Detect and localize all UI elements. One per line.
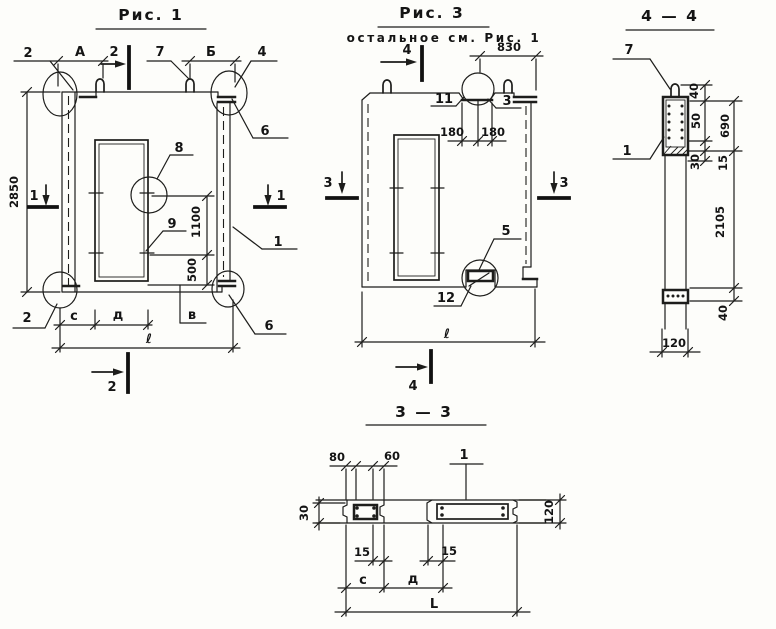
- sec33-pier-section: [343, 500, 384, 523]
- fig3-panel-outline: [362, 93, 537, 287]
- sec33-dimension-lines: [313, 462, 566, 617]
- sec33-dim-60: 60: [384, 449, 400, 463]
- sec33-panel-section: [427, 500, 517, 523]
- drawing-sheet: Рис. 1 2 А 2 7 Б 4 2850 1 1 8 9 1100 500…: [0, 0, 776, 629]
- section-4-4: 4 — 4 7 1 40 50 690 30 15 2105 40 120: [613, 7, 742, 357]
- sec33-title: 3 — 3: [395, 403, 453, 421]
- fig3-label-detail-3: 3: [502, 94, 511, 109]
- fig1-label-detail-7: 7: [155, 45, 164, 60]
- lifting-loop-icon: [383, 80, 391, 93]
- fig1-door-opening: [89, 140, 154, 281]
- fig1-section-2-top-label: 2: [109, 45, 118, 60]
- fig3-opening: [390, 135, 444, 280]
- fig1-label-detail-2-top: 2: [23, 46, 32, 61]
- fig1-lifting-loops: [96, 79, 194, 92]
- fig3-section-3-left-label: 3: [323, 176, 332, 191]
- sec44-dim-120: 120: [662, 336, 686, 350]
- sec33-dim-15-right: 15: [441, 544, 457, 558]
- drawing-canvas: Рис. 1 2 А 2 7 Б 4 2850 1 1 8 9 1100 500…: [0, 0, 776, 629]
- sec44-element: [663, 84, 688, 329]
- fig1-dimension-lines: [13, 57, 297, 353]
- fig1-dim-c: с: [70, 309, 78, 324]
- fig3-dim-180-left: 180: [440, 125, 464, 139]
- figure-1: Рис. 1 2 А 2 7 Б 4 2850 1 1 8 9 1100 500…: [7, 6, 297, 395]
- fig1-dim-2850: 2850: [7, 176, 21, 208]
- fig3-section-4-top-label: 4: [402, 43, 411, 58]
- fig1-label-detail-4: 4: [257, 45, 266, 60]
- fig1-label-detail-1: 1: [273, 235, 282, 250]
- fig1-label-detail-6-top: 6: [260, 124, 269, 139]
- fig1-label-detail-6-bottom: 6: [264, 319, 273, 334]
- sec33-dim-120: 120: [542, 500, 556, 524]
- sec44-label-detail-7: 7: [624, 43, 633, 58]
- fig1-section-2-bottom-label: 2: [107, 380, 116, 395]
- fig3-label-detail-12: 12: [437, 291, 455, 306]
- fig1-dim-500: 500: [185, 258, 199, 282]
- fig3-title: Рис. 3: [399, 4, 464, 22]
- fig3-section-4-bottom-label: 4: [408, 379, 417, 394]
- sec33-dim-80: 80: [329, 450, 345, 464]
- fig1-section-1-right-label: 1: [276, 189, 285, 204]
- sec44-dim-690: 690: [718, 114, 732, 138]
- fig1-dim-length: ℓ: [145, 332, 152, 347]
- fig1-label-detail-9: 9: [167, 217, 176, 232]
- fig3-dim-180-right: 180: [481, 125, 505, 139]
- fig3-section-3-right-label: 3: [559, 176, 568, 191]
- sec33-dim-30: 30: [297, 505, 311, 521]
- fig3-label-detail-5: 5: [501, 224, 510, 239]
- fig1-dim-v: в: [188, 308, 196, 323]
- sec44-label-detail-1: 1: [622, 144, 631, 159]
- fig1-dim-1100: 1100: [189, 206, 203, 238]
- sec33-cut-lines: [316, 500, 546, 523]
- fig3-dim-830: 830: [497, 40, 521, 54]
- sec33-dim-length: L: [430, 597, 438, 612]
- sec44-dim-40-bottom: 40: [716, 305, 730, 321]
- fig1-dim-b: Б: [206, 45, 216, 60]
- sec44-dim-15: 15: [716, 155, 730, 171]
- fig3-label-detail-11: 11: [435, 92, 453, 107]
- lifting-loop-icon: [671, 84, 679, 97]
- figure-3: Рис. 3 остальное см. Рис. 1 4 830 11 3 1…: [323, 4, 569, 394]
- sec44-title: 4 — 4: [641, 7, 699, 25]
- sec33-label-detail-1: 1: [459, 448, 468, 463]
- fig1-section-1-left-label: 1: [29, 189, 38, 204]
- sec44-dim-2105: 2105: [713, 206, 727, 238]
- section-3-3: 3 — 3 80 60 1 30 120 15 15 с д L: [297, 403, 566, 617]
- sec44-dim-30: 30: [688, 154, 702, 170]
- fig1-dim-d: д: [113, 308, 124, 323]
- sec44-dim-40-top: 40: [687, 83, 701, 99]
- fig3-dim-length: ℓ: [443, 327, 450, 342]
- lifting-loop-icon: [186, 79, 194, 92]
- sec44-dim-50: 50: [689, 113, 703, 129]
- sec33-dim-15-left: 15: [354, 545, 370, 559]
- sec33-dim-c: с: [359, 573, 367, 588]
- fig1-label-detail-2-bottom: 2: [22, 311, 31, 326]
- fig1-dim-a: А: [75, 45, 85, 60]
- lifting-loop-icon: [504, 80, 512, 93]
- sec33-dim-d: д: [408, 572, 419, 587]
- lifting-loop-icon: [96, 79, 104, 92]
- fig1-title: Рис. 1: [118, 6, 183, 24]
- fig1-label-detail-8: 8: [174, 141, 183, 156]
